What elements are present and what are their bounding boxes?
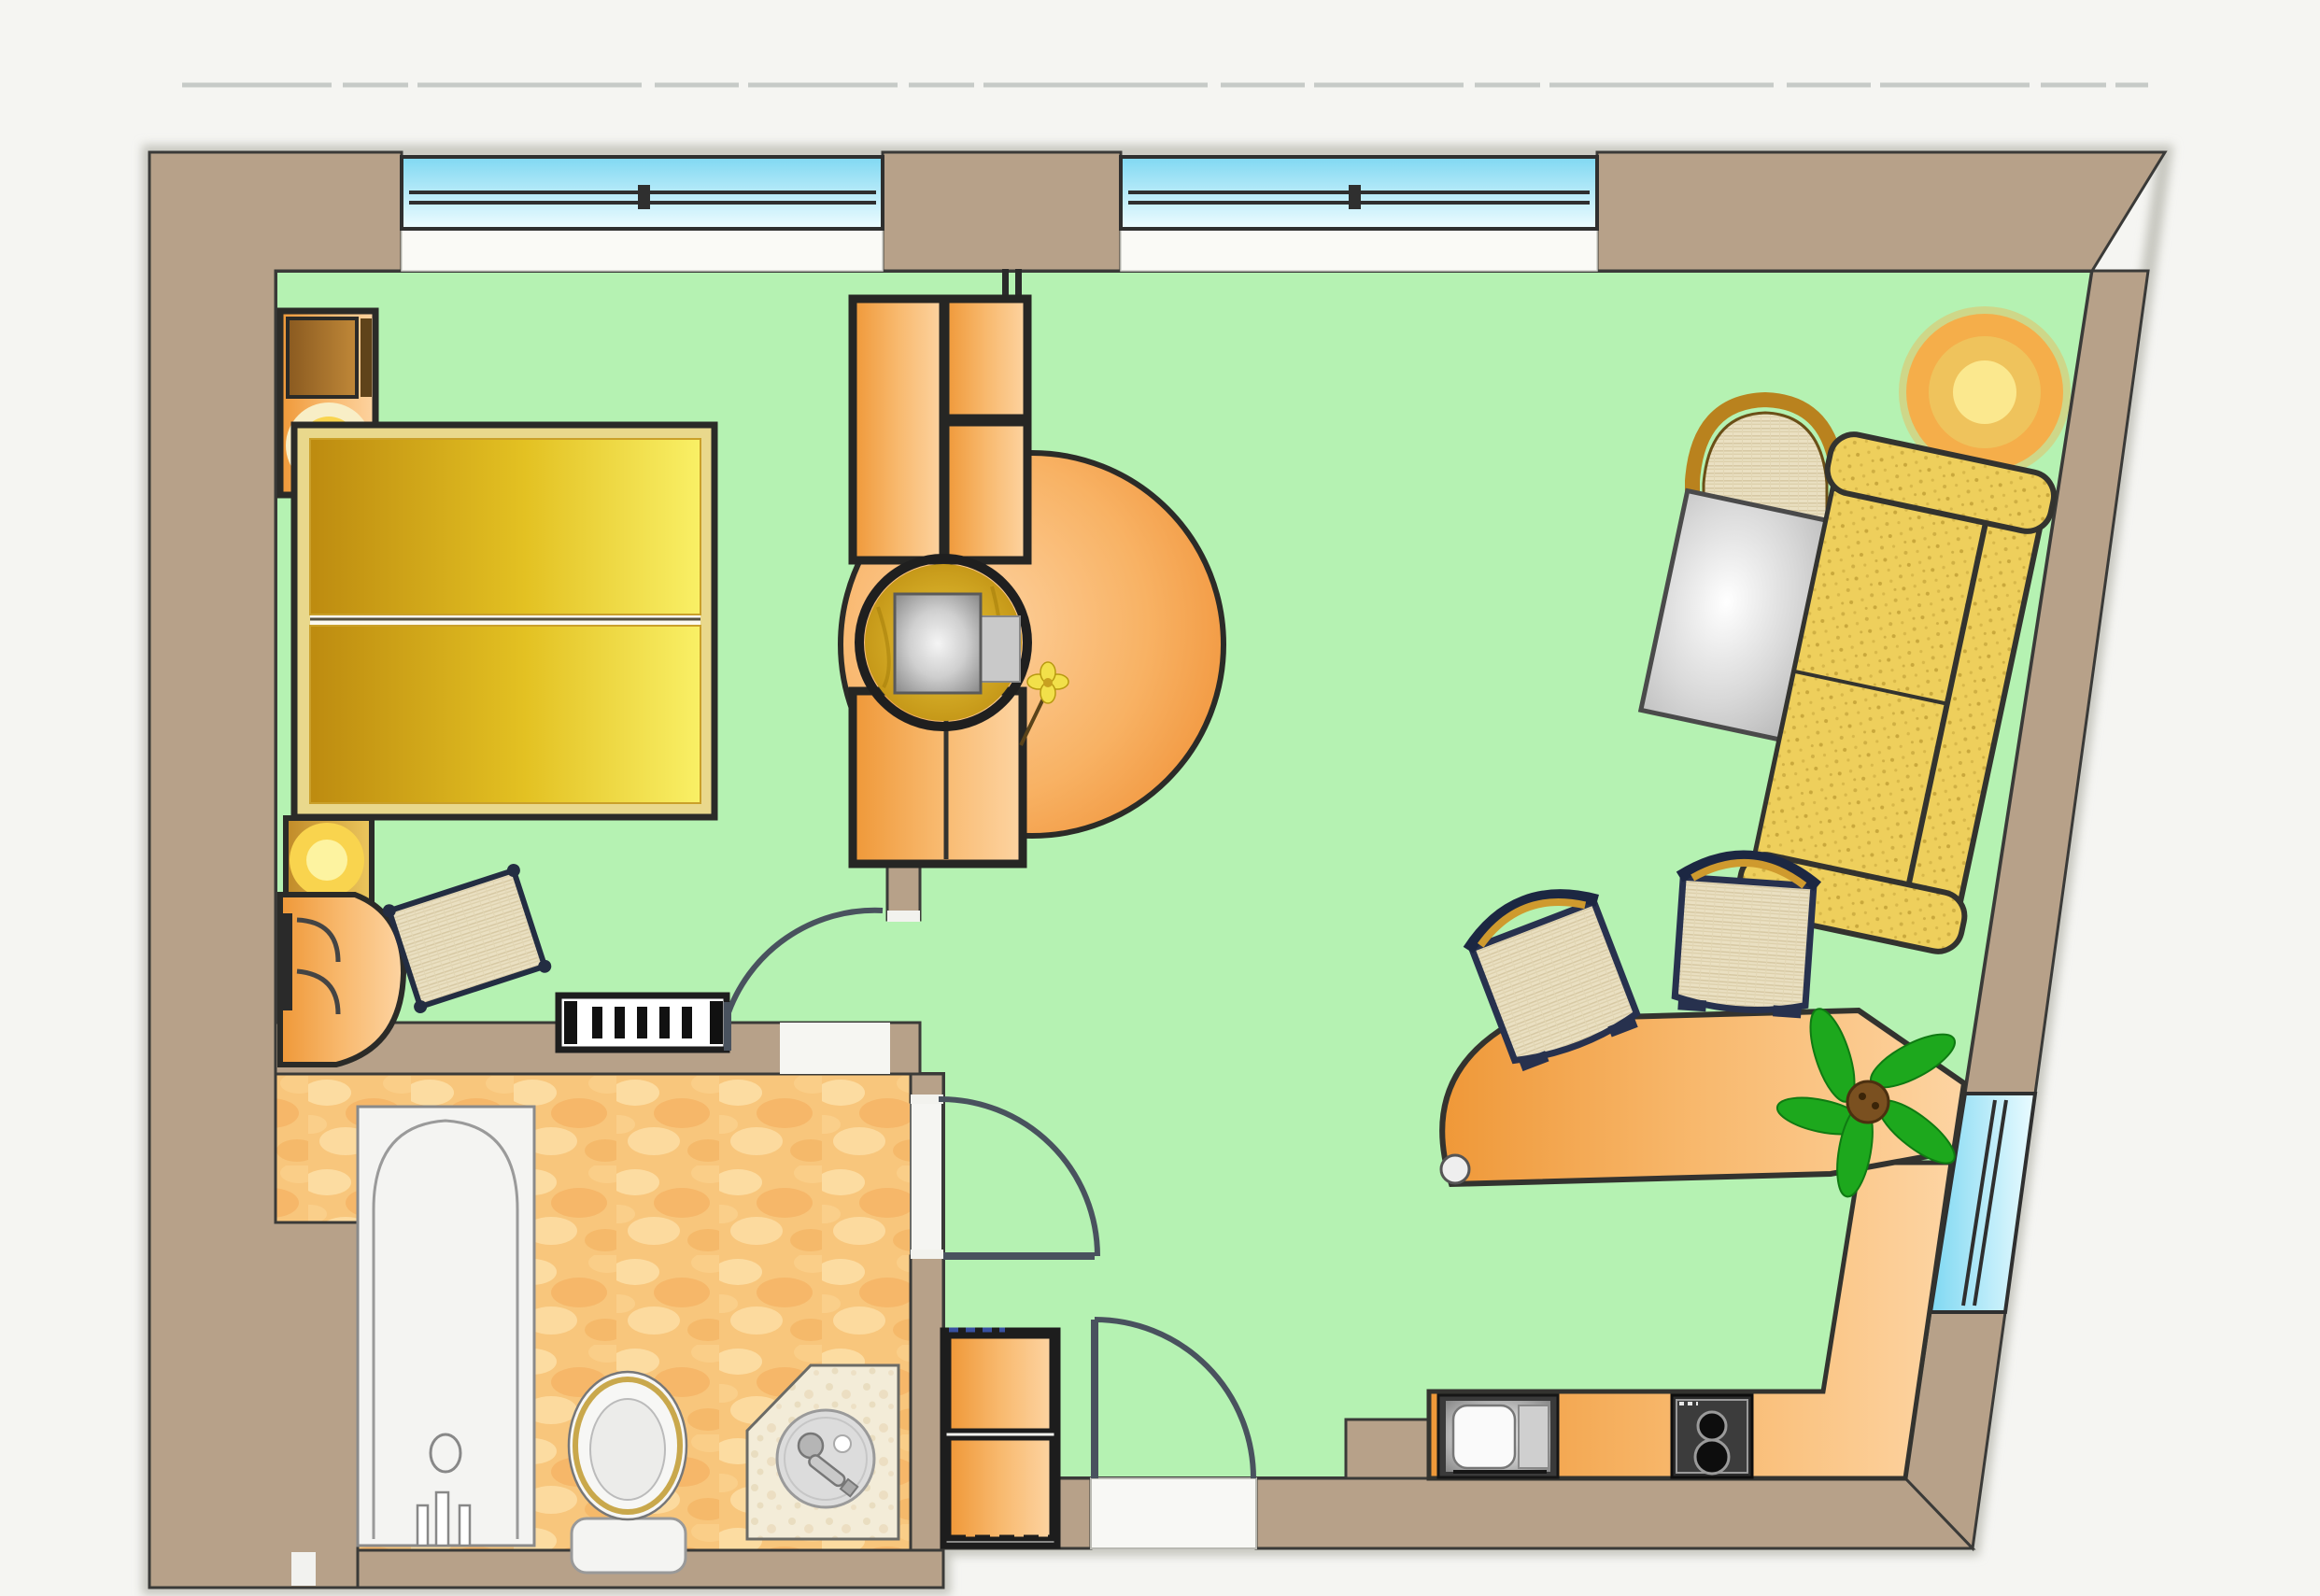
bathtub [358, 1107, 534, 1546]
bottom-wall-right [1256, 1478, 1973, 1548]
floor-plan-canvas [0, 0, 2320, 1596]
sink-drainboard [1519, 1405, 1549, 1468]
tub-faucet [417, 1505, 428, 1546]
radiator [559, 996, 727, 1050]
toilet-tank [572, 1518, 686, 1573]
wall-vent-slot [291, 1552, 316, 1586]
burner-small [1698, 1412, 1726, 1440]
mattress-top [310, 439, 700, 614]
chair-foot [1677, 998, 1706, 1011]
floor-plan-svg [0, 0, 2320, 1596]
double-bed [294, 425, 714, 817]
shower-drain [834, 1435, 851, 1452]
bedroom-door-jamb [887, 911, 920, 922]
top-wall-pier [883, 152, 1121, 271]
closet-shelf-top [949, 1336, 1052, 1431]
tv-turntable [859, 558, 1027, 727]
cabinet-handle-bar [280, 913, 292, 1010]
wardrobe-cell-left [853, 299, 943, 560]
bedroom-doorway-gap [780, 1023, 890, 1074]
nightstand-lower [286, 818, 372, 902]
television [895, 594, 981, 693]
top-right-wall [1597, 152, 2165, 271]
bath-door-jamb-bottom [911, 1250, 943, 1259]
burner-large [1695, 1440, 1729, 1474]
bathroom-right-wall [911, 1256, 943, 1550]
plant-pot [1847, 1081, 1889, 1123]
shower-basin [777, 1410, 874, 1507]
kitchen-sink [1438, 1395, 1558, 1477]
shower-head [799, 1434, 823, 1458]
bath-door-jamb-top [911, 1095, 943, 1104]
desk-leg-knob [1441, 1155, 1469, 1183]
tv-swivel-arm [977, 616, 1020, 682]
counter-stub-wall [1346, 1419, 1429, 1478]
entrance-threshold [1091, 1478, 1256, 1548]
tub-faucet [460, 1505, 470, 1546]
living-window [1121, 157, 1597, 271]
tub-faucet [436, 1492, 448, 1546]
stove-two-burners [1672, 1395, 1752, 1477]
sink-basin [1453, 1405, 1515, 1468]
wardrobe-cell-bottom-right [945, 422, 1027, 560]
nightstand-side [361, 318, 372, 397]
nightstand-shelf [288, 318, 357, 397]
chair-foot [1773, 1005, 1802, 1018]
wardrobe-cell-top-right [945, 299, 1027, 418]
closet-shelf-bottom [949, 1438, 1052, 1539]
mattress-bottom [310, 626, 700, 803]
toilet [569, 1372, 686, 1573]
bedroom-window [402, 157, 883, 271]
hallway-closet [943, 1330, 1057, 1546]
window-mullion-tick [1349, 185, 1361, 209]
window-mullion-tick [638, 185, 650, 209]
